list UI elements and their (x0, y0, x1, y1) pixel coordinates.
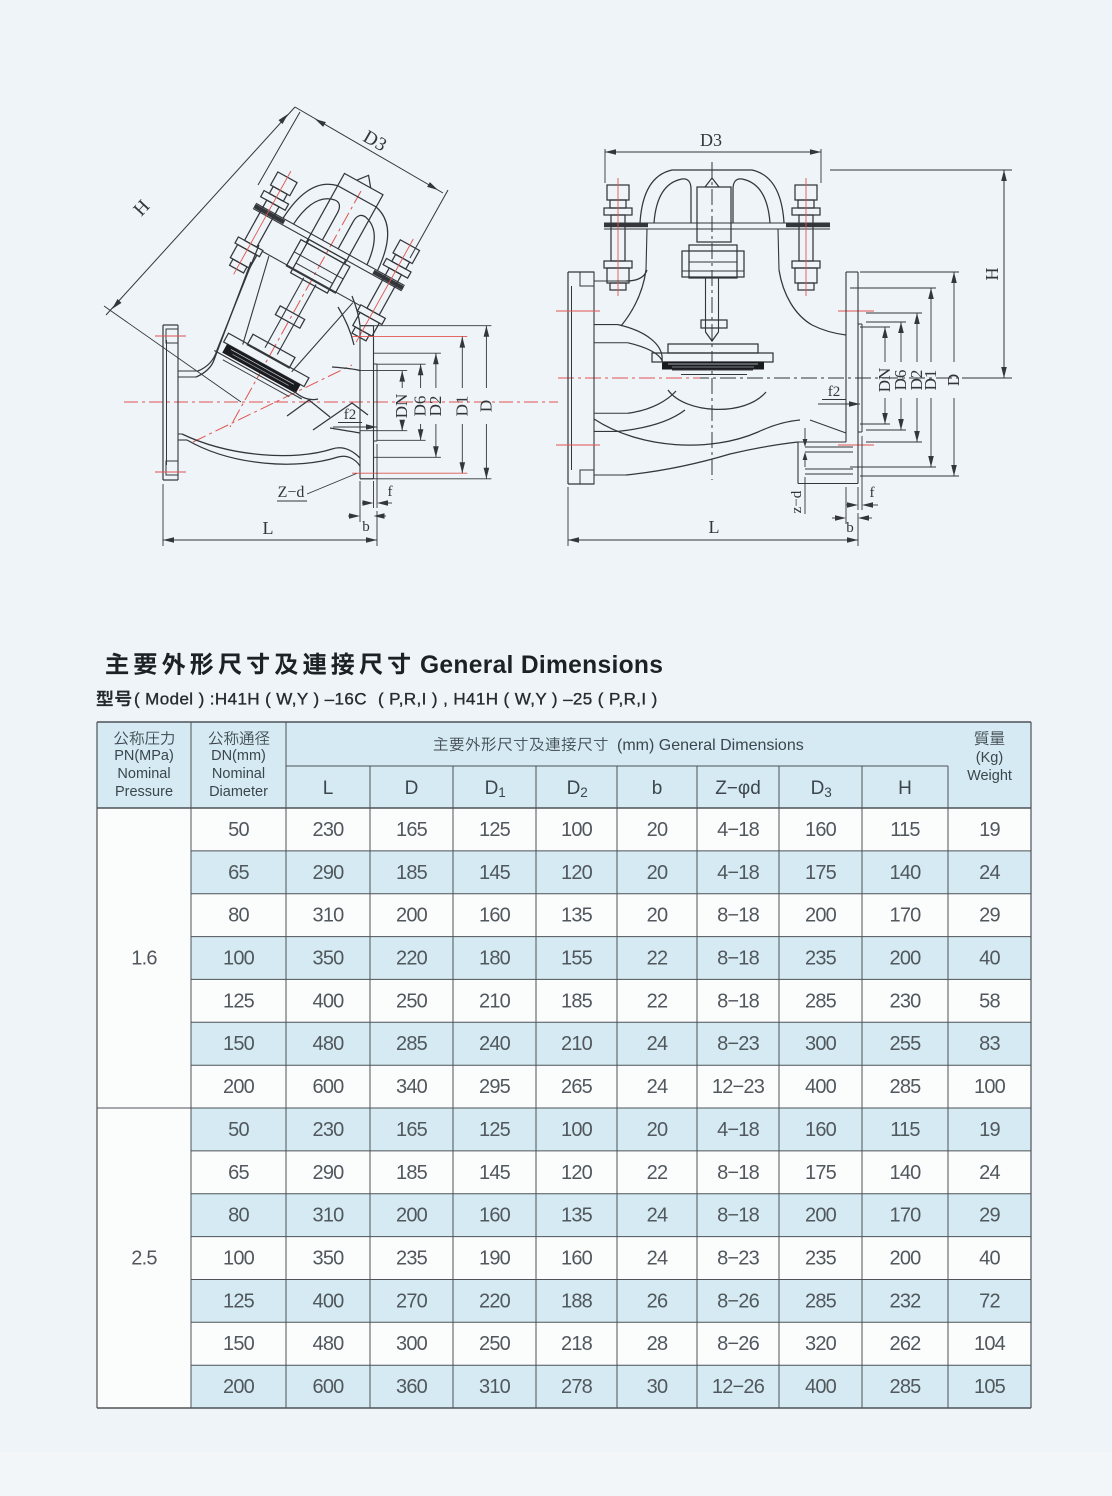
svg-text:Z−φd: Z−φd (715, 778, 761, 799)
svg-text:250: 250 (396, 990, 428, 1012)
svg-text:Weight: Weight (967, 768, 1012, 784)
svg-text:20: 20 (647, 1119, 668, 1141)
svg-text:D3: D3 (700, 130, 722, 150)
svg-text:200: 200 (396, 1205, 428, 1227)
svg-text:22: 22 (647, 990, 668, 1012)
svg-text:D: D (567, 778, 581, 799)
svg-text:H: H (982, 268, 1002, 281)
svg-text:285: 285 (890, 1376, 922, 1398)
svg-text:26: 26 (647, 1290, 668, 1312)
svg-text:z−d: z−d (789, 490, 805, 513)
svg-text:100: 100 (223, 1248, 255, 1270)
svg-text:40: 40 (979, 1248, 1000, 1270)
svg-text:320: 320 (805, 1333, 837, 1355)
svg-text:4−18: 4−18 (717, 1119, 760, 1141)
svg-text:19: 19 (979, 1119, 1000, 1141)
svg-text:D2: D2 (426, 396, 445, 417)
svg-text:24: 24 (647, 1033, 668, 1055)
svg-text:22: 22 (647, 948, 668, 970)
svg-text:40: 40 (979, 948, 1000, 970)
svg-text:200: 200 (890, 1248, 922, 1270)
svg-text:D: D (405, 778, 419, 799)
svg-text:285: 285 (805, 1290, 837, 1312)
svg-text:285: 285 (890, 1076, 922, 1098)
svg-text:PN(MPa): PN(MPa) (114, 748, 174, 764)
svg-text:Nominal: Nominal (212, 766, 265, 782)
svg-text:b: b (846, 520, 854, 536)
svg-text:100: 100 (561, 1119, 593, 1141)
svg-text:80: 80 (228, 1205, 249, 1227)
svg-text:160: 160 (805, 1119, 837, 1141)
svg-text:210: 210 (479, 990, 511, 1012)
svg-text:DN(mm): DN(mm) (211, 748, 266, 764)
svg-text:50: 50 (228, 1119, 249, 1141)
svg-text:270: 270 (396, 1290, 428, 1312)
svg-text:30: 30 (647, 1376, 668, 1398)
svg-text:f: f (870, 485, 875, 501)
svg-text:115: 115 (890, 1119, 920, 1141)
svg-text:72: 72 (979, 1290, 1000, 1312)
svg-text:300: 300 (805, 1033, 837, 1055)
svg-text:1: 1 (498, 785, 506, 800)
svg-text:65: 65 (228, 1162, 249, 1184)
svg-text:Nominal: Nominal (117, 766, 170, 782)
svg-text:8−18: 8−18 (717, 1205, 760, 1227)
svg-text:230: 230 (313, 819, 345, 841)
svg-text:19: 19 (979, 819, 1000, 841)
svg-text:255: 255 (890, 1033, 922, 1055)
svg-text:29: 29 (979, 905, 1000, 927)
svg-text:Pressure: Pressure (115, 784, 173, 800)
svg-text:D: D (485, 778, 499, 799)
svg-text:210: 210 (561, 1033, 593, 1055)
svg-text:140: 140 (890, 862, 922, 884)
svg-text:180: 180 (479, 948, 511, 970)
svg-text:170: 170 (890, 1205, 922, 1227)
svg-text:f: f (388, 484, 393, 500)
svg-text:185: 185 (396, 862, 428, 884)
svg-text:185: 185 (396, 1162, 428, 1184)
svg-text:100: 100 (974, 1076, 1006, 1098)
svg-text:4−18: 4−18 (717, 819, 760, 841)
svg-text:22: 22 (647, 1162, 668, 1184)
svg-text:155: 155 (561, 948, 593, 970)
svg-text:12−23: 12−23 (712, 1076, 765, 1098)
svg-text:262: 262 (890, 1333, 922, 1355)
svg-text:8−18: 8−18 (717, 1162, 760, 1184)
svg-text:200: 200 (223, 1376, 255, 1398)
svg-text:105: 105 (974, 1376, 1006, 1398)
svg-text:1.6: 1.6 (131, 948, 157, 970)
svg-text:8−18: 8−18 (717, 948, 760, 970)
svg-text:104: 104 (974, 1333, 1006, 1355)
svg-text:175: 175 (805, 1162, 837, 1184)
svg-text:4−18: 4−18 (717, 862, 760, 884)
svg-text:185: 185 (561, 990, 593, 1012)
svg-text:145: 145 (479, 1162, 511, 1184)
svg-text:310: 310 (479, 1376, 511, 1398)
svg-text:b: b (652, 778, 663, 799)
svg-text:170: 170 (890, 905, 922, 927)
svg-text:115: 115 (890, 819, 920, 841)
svg-text:190: 190 (479, 1248, 511, 1270)
svg-text:200: 200 (805, 1205, 837, 1227)
svg-text:24: 24 (647, 1248, 668, 1270)
svg-text:DN: DN (392, 394, 411, 419)
svg-text:2.5: 2.5 (131, 1248, 157, 1270)
svg-text:140: 140 (890, 1162, 922, 1184)
svg-text:24: 24 (979, 1162, 1000, 1184)
svg-text:12−26: 12−26 (712, 1376, 765, 1398)
svg-text:80: 80 (228, 905, 249, 927)
svg-text:120: 120 (561, 1162, 593, 1184)
svg-text:28: 28 (647, 1333, 668, 1355)
svg-text:250: 250 (479, 1333, 511, 1355)
svg-text:L: L (323, 778, 334, 799)
svg-text:235: 235 (805, 1248, 837, 1270)
svg-text:125: 125 (479, 819, 511, 841)
svg-text:400: 400 (313, 1290, 345, 1312)
svg-text:230: 230 (890, 990, 922, 1012)
svg-text:340: 340 (396, 1076, 428, 1098)
svg-text:400: 400 (805, 1076, 837, 1098)
svg-text:135: 135 (561, 1205, 593, 1227)
svg-text:300: 300 (396, 1333, 428, 1355)
svg-text:100: 100 (561, 819, 593, 841)
svg-text:220: 220 (479, 1290, 511, 1312)
svg-text:120: 120 (561, 862, 593, 884)
svg-text:29: 29 (979, 1205, 1000, 1227)
svg-text:8−23: 8−23 (717, 1033, 760, 1055)
svg-text:188: 188 (561, 1290, 593, 1312)
svg-text:20: 20 (647, 905, 668, 927)
svg-text:125: 125 (223, 1290, 255, 1312)
svg-text:240: 240 (479, 1033, 511, 1055)
svg-text:(Kg): (Kg) (976, 750, 1003, 766)
svg-text:600: 600 (313, 1376, 345, 1398)
svg-text:480: 480 (313, 1033, 345, 1055)
svg-text:20: 20 (647, 862, 668, 884)
svg-text:( P,R,I ) , H41H ( W,Y ) –25 (: ( P,R,I ) , H41H ( W,Y ) –25 ( P,R,I ) (378, 690, 658, 709)
svg-text:100: 100 (223, 948, 255, 970)
svg-text:f2: f2 (344, 407, 357, 423)
svg-text:265: 265 (561, 1076, 593, 1098)
svg-text:50: 50 (228, 819, 249, 841)
svg-text:600: 600 (313, 1076, 345, 1098)
svg-text:24: 24 (647, 1205, 668, 1227)
svg-text:D: D (944, 374, 963, 386)
svg-text:285: 285 (805, 990, 837, 1012)
svg-text:160: 160 (479, 1205, 511, 1227)
svg-text:3: 3 (824, 785, 832, 800)
svg-text:D: D (811, 778, 825, 799)
svg-text:290: 290 (313, 1162, 345, 1184)
svg-text:235: 235 (805, 948, 837, 970)
svg-text:2: 2 (580, 785, 588, 800)
svg-text:( Model ) :H41H ( W,Y ) –16C: ( Model ) :H41H ( W,Y ) –16C (134, 690, 367, 709)
svg-text:8−26: 8−26 (717, 1290, 760, 1312)
svg-text:310: 310 (313, 1205, 345, 1227)
svg-text:83: 83 (979, 1033, 1000, 1055)
svg-text:400: 400 (805, 1376, 837, 1398)
svg-text:160: 160 (479, 905, 511, 927)
svg-text:20: 20 (647, 819, 668, 841)
svg-text:165: 165 (396, 819, 428, 841)
svg-text:200: 200 (223, 1076, 255, 1098)
svg-text:Diameter: Diameter (209, 784, 268, 800)
svg-text:135: 135 (561, 905, 593, 927)
svg-text:H: H (898, 778, 912, 799)
svg-text:(mm) General Dimensions: (mm) General Dimensions (617, 737, 804, 754)
svg-text:L: L (709, 517, 720, 537)
svg-text:125: 125 (479, 1119, 511, 1141)
svg-text:f2: f2 (828, 384, 841, 400)
svg-text:200: 200 (890, 948, 922, 970)
svg-text:310: 310 (313, 905, 345, 927)
svg-text:Z−d: Z−d (278, 484, 305, 501)
svg-text:218: 218 (561, 1333, 593, 1355)
svg-text:350: 350 (313, 1248, 345, 1270)
svg-text:24: 24 (647, 1076, 668, 1098)
svg-text:200: 200 (396, 905, 428, 927)
svg-text:8−18: 8−18 (717, 905, 760, 927)
svg-text:235: 235 (396, 1248, 428, 1270)
svg-text:285: 285 (396, 1033, 428, 1055)
svg-text:150: 150 (223, 1333, 255, 1355)
svg-text:232: 232 (890, 1290, 922, 1312)
svg-text:150: 150 (223, 1033, 255, 1055)
svg-text:D1: D1 (921, 370, 940, 391)
svg-text:400: 400 (313, 990, 345, 1012)
svg-text:230: 230 (313, 1119, 345, 1141)
svg-text:480: 480 (313, 1333, 345, 1355)
svg-text:24: 24 (979, 862, 1000, 884)
svg-text:8−26: 8−26 (717, 1333, 760, 1355)
svg-text:165: 165 (396, 1119, 428, 1141)
svg-text:65: 65 (228, 862, 249, 884)
svg-text:D1: D1 (452, 396, 471, 417)
svg-text:278: 278 (561, 1376, 593, 1398)
svg-text:b: b (362, 519, 370, 535)
svg-text:General Dimensions: General Dimensions (420, 652, 663, 679)
svg-text:360: 360 (396, 1376, 428, 1398)
svg-text:D: D (476, 400, 495, 412)
svg-text:8−18: 8−18 (717, 990, 760, 1012)
svg-text:L: L (263, 518, 274, 538)
svg-text:8−23: 8−23 (717, 1248, 760, 1270)
svg-text:175: 175 (805, 862, 837, 884)
svg-text:160: 160 (561, 1248, 593, 1270)
svg-text:125: 125 (223, 990, 255, 1012)
svg-text:290: 290 (313, 862, 345, 884)
svg-text:295: 295 (479, 1076, 511, 1098)
svg-text:200: 200 (805, 905, 837, 927)
svg-text:58: 58 (979, 990, 1000, 1012)
svg-text:350: 350 (313, 948, 345, 970)
svg-text:160: 160 (805, 819, 837, 841)
svg-text:220: 220 (396, 948, 428, 970)
svg-text:145: 145 (479, 862, 511, 884)
